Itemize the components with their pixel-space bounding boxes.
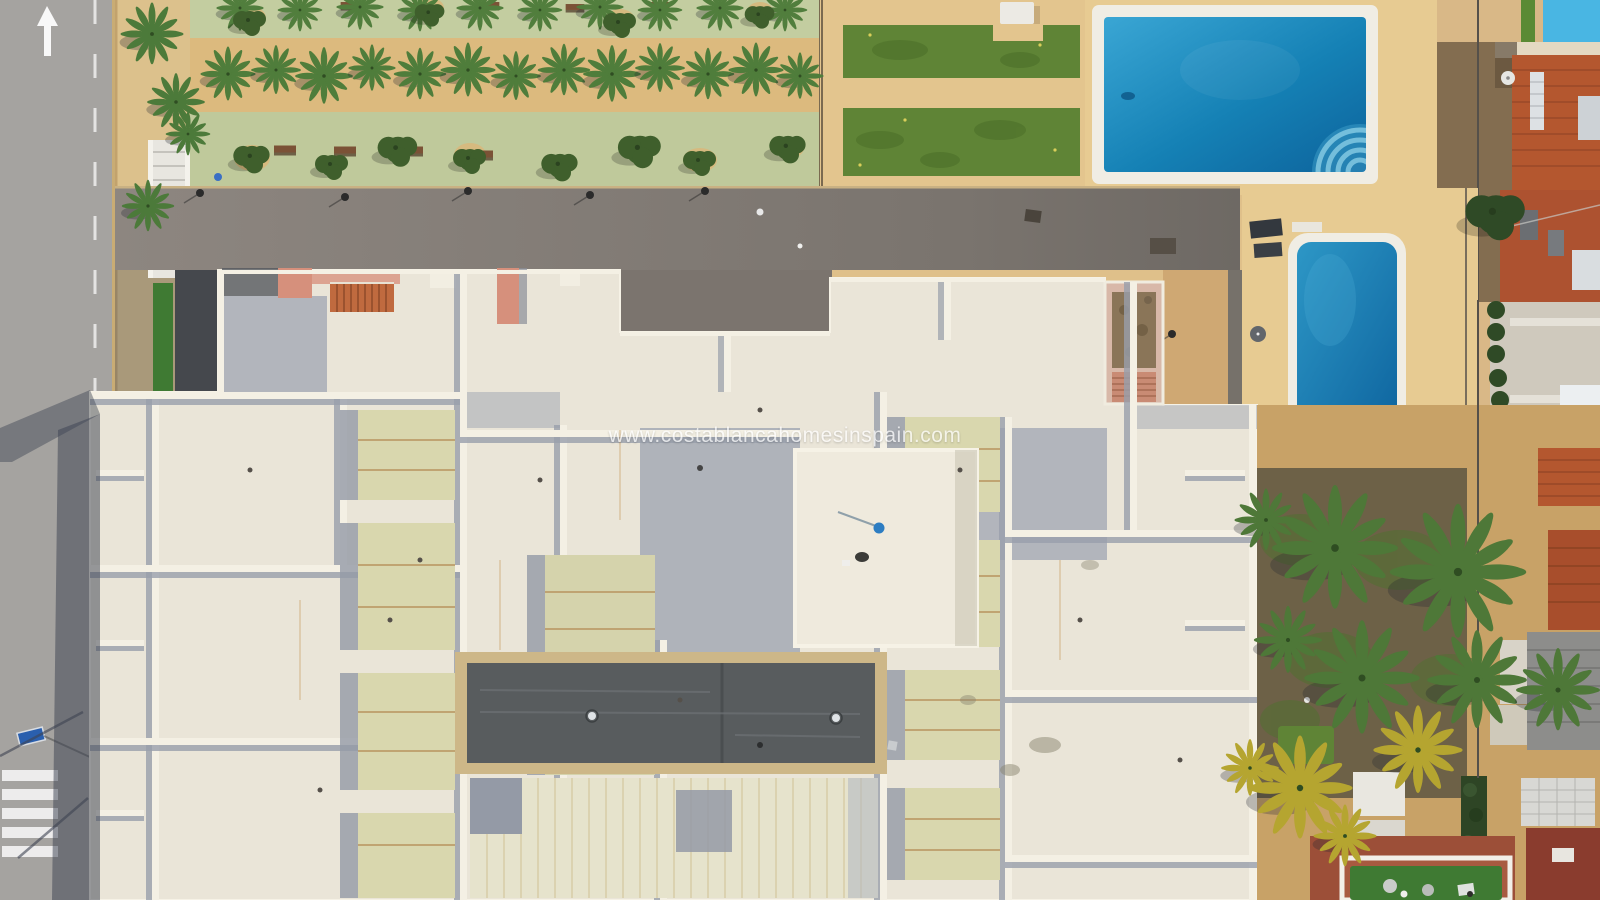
shadow-alley <box>175 262 220 395</box>
lawn-garden <box>820 0 1085 188</box>
tiled-roof <box>1538 448 1600 506</box>
ac-unit <box>1249 218 1283 238</box>
rooftop-stairs <box>330 283 394 312</box>
awning <box>1572 250 1600 290</box>
terrace-furniture <box>1422 884 1434 896</box>
aerial-photo-scene: www.costablancahomesinspain.com <box>0 0 1600 900</box>
dark-flat-roof <box>455 652 898 774</box>
awning <box>1578 96 1600 140</box>
manhole <box>1150 238 1176 254</box>
blue-ball <box>214 173 222 181</box>
rooftop-structure-salmon <box>497 268 519 324</box>
manhole <box>1024 209 1042 223</box>
hedge <box>1521 0 1535 42</box>
park-promenade <box>190 0 830 188</box>
park-bench <box>274 146 296 156</box>
ac-unit <box>1254 242 1283 258</box>
turf-strip <box>153 283 173 395</box>
pool-cleaning-tool <box>874 523 885 534</box>
tiled-roof <box>1548 530 1600 630</box>
red-building <box>1526 828 1600 900</box>
window-shutter <box>1530 72 1544 130</box>
sun-lounger <box>1000 2 1034 24</box>
aerial-scene-svg <box>0 0 1600 900</box>
terrace-furniture <box>1383 879 1397 893</box>
apartment-rooftop <box>90 268 1257 900</box>
neighbor-pool <box>1543 0 1600 42</box>
watermark: www.costablancahomesinspain.com <box>609 424 962 448</box>
park-bench <box>334 147 356 157</box>
